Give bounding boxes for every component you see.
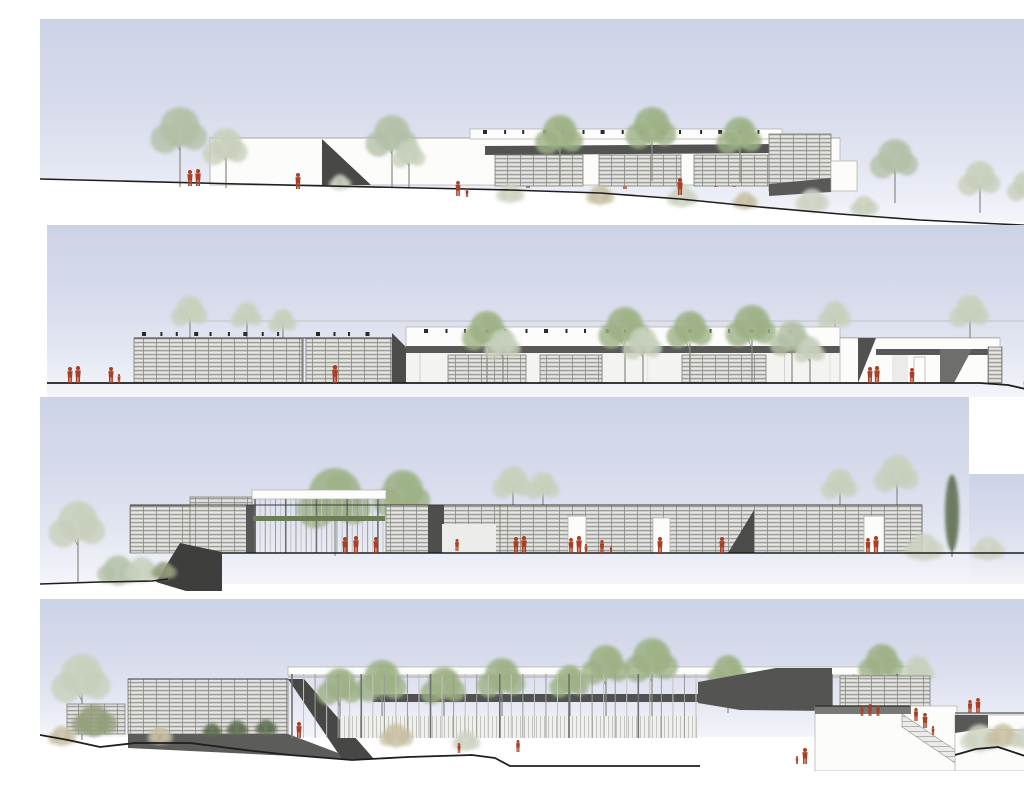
elevation-1	[40, 19, 1024, 230]
elevation-4	[40, 599, 1024, 771]
person-figure	[796, 756, 799, 764]
person-figure	[457, 743, 460, 753]
person-figure	[516, 740, 520, 752]
elevation-sheet	[40, 16, 1024, 771]
drawing-root	[40, 19, 1024, 771]
elevations-drawing	[40, 16, 1024, 771]
sky	[969, 474, 1024, 584]
person-figure	[802, 748, 807, 764]
elevation-3	[40, 397, 1024, 598]
elevation-2	[47, 225, 1024, 399]
